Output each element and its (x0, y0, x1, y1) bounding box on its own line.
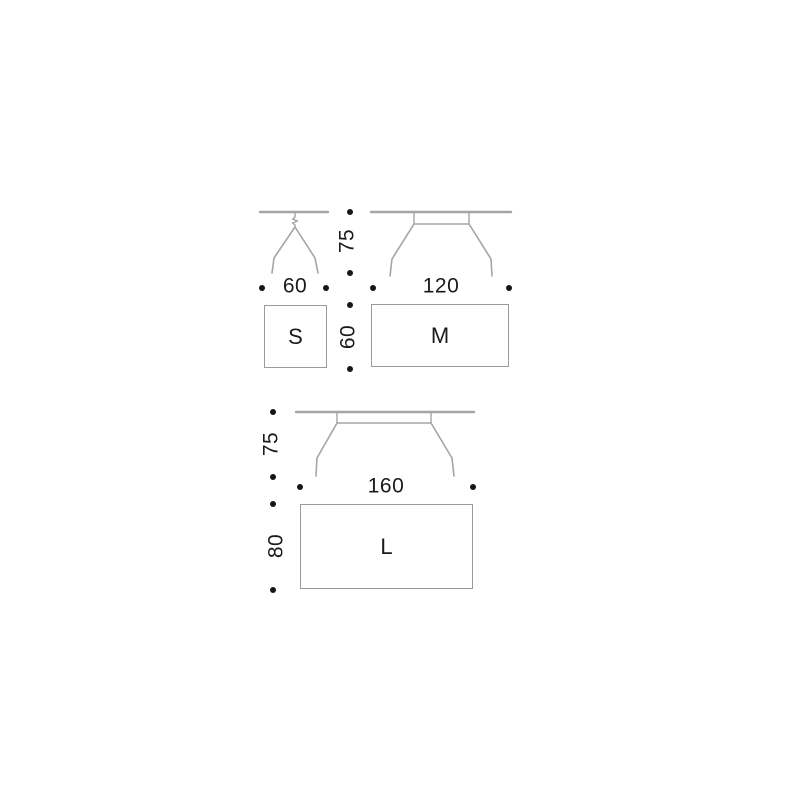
dimension-dot (270, 587, 276, 593)
dimension-dot (270, 501, 276, 507)
dimension-dot (347, 209, 353, 215)
dimension-dot (370, 285, 376, 291)
table-linework-layer (0, 0, 800, 800)
tabletop-plan-rect-l: L (300, 504, 473, 589)
table-m-left-leg (390, 224, 414, 276)
dimension-dot (347, 270, 353, 276)
size-letter-s: S (288, 326, 303, 348)
dimension-dot (297, 484, 303, 490)
size-letter-m: M (431, 325, 449, 347)
table-m-right-leg (469, 224, 492, 276)
l-depth-dimension-label: 80 (266, 534, 287, 558)
table-side-view-m (371, 212, 511, 276)
table-s-stem (293, 213, 298, 227)
dimension-dot (347, 366, 353, 372)
dimension-dot (506, 285, 512, 291)
table-s-right-leg (295, 227, 318, 273)
dimension-dot (270, 409, 276, 415)
s-width-dimension-label: 60 (283, 276, 307, 297)
table-s-left-leg (272, 227, 295, 273)
tabletop-plan-rect-s: S (264, 305, 327, 368)
table-l-right-leg (431, 423, 454, 476)
height-dimension-label-top: 75 (337, 229, 358, 253)
tabletop-plan-rect-m: M (371, 304, 509, 367)
dimension-dot (470, 484, 476, 490)
dimension-dot (270, 474, 276, 480)
l-width-dimension-label: 160 (368, 476, 405, 497)
size-letter-l: L (380, 536, 392, 558)
diagram-canvas: 75 60 120 60 75 160 80 S M L (0, 0, 800, 800)
table-l-left-leg (316, 423, 337, 476)
m-width-dimension-label: 120 (423, 276, 460, 297)
height-dimension-label-bottom: 75 (261, 432, 282, 456)
dimension-dot (323, 285, 329, 291)
depth-dimension-label-top: 60 (338, 325, 359, 349)
dimension-dot (347, 302, 353, 308)
table-side-view-l (296, 412, 474, 476)
table-side-view-s (260, 212, 328, 273)
dimension-dot (259, 285, 265, 291)
